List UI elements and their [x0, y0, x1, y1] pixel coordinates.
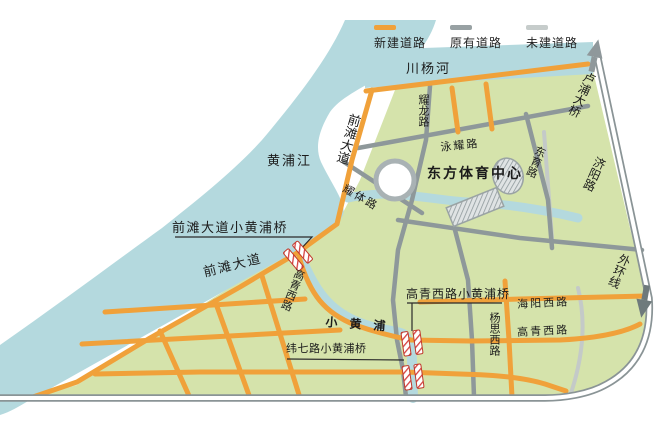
- legend: 新建道路 原有道路 未建道路: [374, 25, 586, 51]
- legend-swatch-unbuilt-road: [526, 25, 548, 30]
- arena-circle: [376, 161, 414, 199]
- label-yangsi-west-road: 杨思西路: [488, 312, 499, 356]
- legend-item-new-road: 新建道路: [374, 25, 434, 51]
- label-sports-center: 东方体育中心: [427, 166, 523, 180]
- legend-item-existing-road: 原有道路: [450, 25, 510, 51]
- legend-swatch-existing-road: [450, 25, 472, 30]
- legend-label-existing-road: 原有道路: [450, 34, 502, 51]
- label-yaolong-road: 耀龙路: [417, 94, 428, 127]
- map-canvas: 新建道路 原有道路 未建道路 川杨河 黄浦江 小黄浦 前滩大道 前滩大道 耀龙路…: [0, 0, 661, 423]
- legend-label-new-road: 新建道路: [374, 34, 426, 51]
- label-huangpu-river: 黄浦江: [267, 154, 312, 167]
- legend-label-unbuilt-road: 未建道路: [526, 34, 578, 51]
- label-qiantan-bridge: 前滩大道小黄浦桥: [172, 221, 288, 234]
- label-gaoqing-bridge: 高青西路小黄浦桥: [406, 288, 510, 300]
- label-chuanyang-river: 川杨河: [406, 62, 451, 75]
- map-graphic: [0, 0, 661, 423]
- legend-swatch-new-road: [374, 25, 396, 30]
- label-weiqi-bridge: 纬七路小黄浦桥: [286, 344, 367, 355]
- legend-item-unbuilt-road: 未建道路: [526, 25, 586, 51]
